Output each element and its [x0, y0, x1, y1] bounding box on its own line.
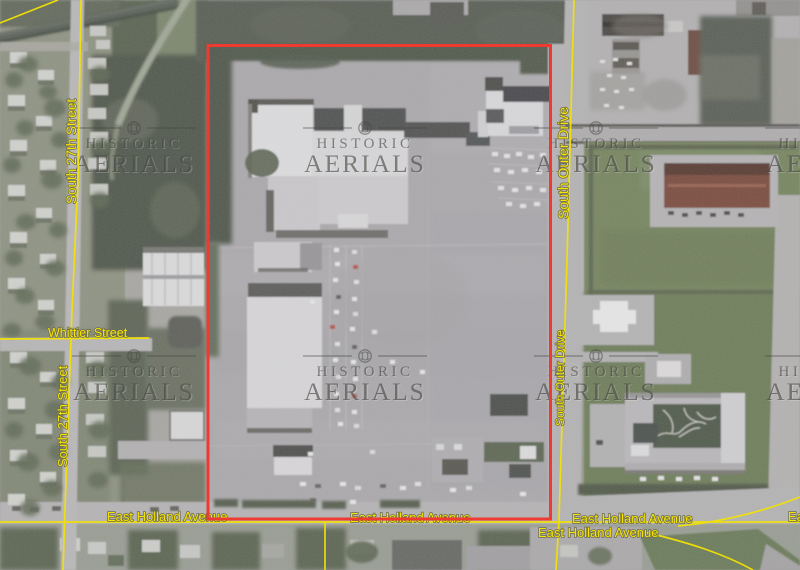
svg-text:South 27th Street: South 27th Street [55, 365, 70, 467]
svg-text:East Holland Avenue: East Holland Avenue [538, 525, 658, 540]
svg-text:South Outer Drive: South Outer Drive [555, 107, 571, 219]
svg-text:East Holland Avenue: East Holland Avenue [572, 511, 692, 526]
svg-text:East Holland Avenue: East Holland Avenue [788, 509, 800, 524]
svg-text:Whittier Street: Whittier Street [48, 326, 128, 340]
svg-text:South 27th Street: South 27th Street [64, 99, 79, 204]
svg-text:South Outer Drive: South Outer Drive [553, 330, 567, 426]
